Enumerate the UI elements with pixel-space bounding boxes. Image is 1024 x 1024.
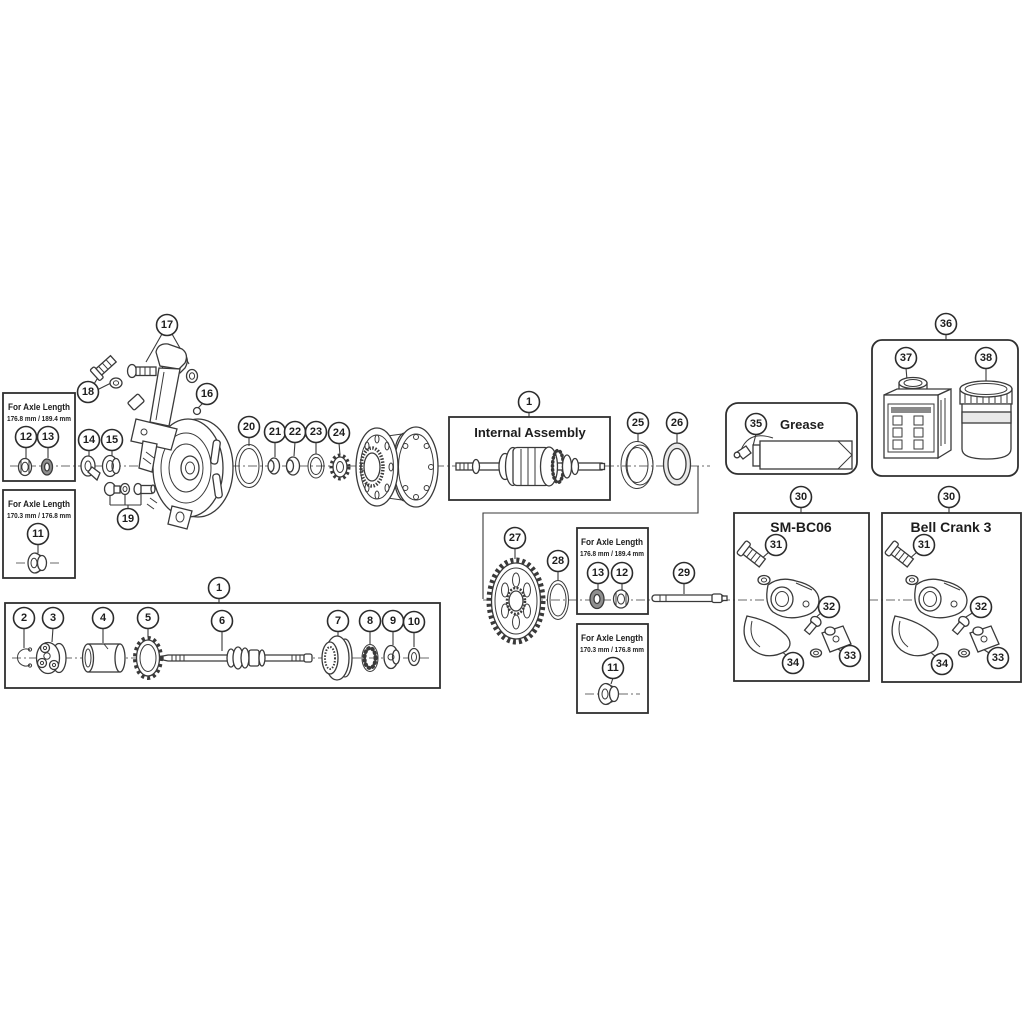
callout-1-internal: 1	[519, 392, 540, 413]
callout-7: 7	[328, 611, 349, 632]
callout-label: 9	[390, 615, 396, 627]
callout-29: 29	[674, 563, 695, 584]
part-ball-16	[194, 408, 201, 415]
box-subtitle: 170.3 mm / 176.8 mm	[7, 511, 71, 520]
part-carrier-sleeve-4	[83, 644, 126, 672]
part-cap-nut-11-mid	[599, 684, 619, 705]
callout-10: 10	[404, 612, 425, 633]
callout-33-bell-crank: 33	[988, 648, 1009, 669]
callout-label: 34	[787, 657, 800, 669]
callout-27: 27	[505, 528, 526, 549]
box-subtitle: 170.3 mm / 176.8 mm	[580, 645, 644, 654]
callout-31-bell-crank: 31	[914, 535, 935, 556]
callout-11-left: 11	[28, 524, 49, 545]
callout-8: 8	[360, 611, 381, 632]
callout-label: 24	[333, 427, 346, 439]
box-title-bell-crank-3: Bell Crank 3	[911, 519, 992, 535]
callout-26: 26	[667, 413, 688, 434]
callout-14: 14	[79, 430, 100, 451]
callout-label: 27	[509, 532, 521, 544]
box-title: For Axle Length	[581, 537, 643, 547]
callout-11-mid: 11	[603, 658, 624, 679]
callout-label: 14	[83, 434, 96, 446]
callout-label: 20	[243, 421, 255, 433]
callout-label: 23	[310, 426, 322, 438]
callout-23: 23	[306, 422, 327, 443]
part-cone-22	[287, 457, 300, 475]
box-title: For Axle Length	[581, 633, 643, 643]
callout-19: 19	[118, 509, 139, 530]
callout-12-mid: 12	[612, 563, 633, 584]
callout-32-bell-crank: 32	[971, 597, 992, 618]
callout-13-left: 13	[38, 427, 59, 448]
callout-34-sm-bc06: 34	[783, 653, 804, 674]
callout-25: 25	[628, 413, 649, 434]
callout-label: 37	[900, 352, 912, 364]
callout-5: 5	[138, 608, 159, 629]
callout-24: 24	[329, 423, 350, 444]
box-title-grease: Grease	[780, 417, 824, 432]
callout-label: 29	[678, 567, 690, 579]
callout-label: 30	[795, 491, 807, 503]
callout-label: 6	[219, 615, 225, 627]
callout-label: 26	[671, 417, 683, 429]
callout-28: 28	[548, 551, 569, 572]
callout-label: 15	[106, 434, 118, 446]
callout-label: 7	[335, 615, 341, 627]
callout-30-bell-crank: 30	[939, 487, 960, 508]
callout-label: 16	[201, 388, 213, 400]
background	[0, 0, 1024, 1024]
callout-16: 16	[197, 384, 218, 405]
callout-label: 2	[21, 612, 27, 624]
part-seal-ring-26	[664, 443, 691, 485]
callout-label: 10	[408, 616, 420, 628]
callout-label: 5	[145, 612, 151, 624]
callout-36: 36	[936, 314, 957, 335]
callout-label: 22	[289, 426, 301, 438]
callout-label: 3	[50, 612, 56, 624]
callout-label: 12	[616, 567, 628, 579]
callout-label: 8	[367, 615, 373, 627]
callout-12-left: 12	[16, 427, 37, 448]
callout-label: 1	[216, 582, 222, 594]
callout-label: 12	[20, 431, 32, 443]
callout-label: 32	[975, 601, 987, 613]
callout-31-sm-bc06: 31	[766, 535, 787, 556]
callout-label: 21	[269, 426, 281, 438]
part-washer-10	[409, 649, 420, 666]
callout-37: 37	[896, 348, 917, 369]
callout-label: 32	[823, 601, 835, 613]
box-title: For Axle Length	[8, 402, 70, 412]
callout-label: 11	[607, 662, 619, 674]
callout-label: 17	[161, 319, 173, 331]
callout-18: 18	[78, 382, 99, 403]
callout-13-mid: 13	[588, 563, 609, 584]
part-cap-nut-11-left	[28, 553, 47, 573]
callout-2: 2	[14, 608, 35, 629]
callout-label: 31	[918, 539, 930, 551]
part-seal-13-left	[42, 459, 53, 475]
callout-33-sm-bc06: 33	[840, 646, 861, 667]
callout-label: 36	[940, 318, 952, 330]
callout-label: 30	[943, 491, 955, 503]
callout-35: 35	[746, 414, 767, 435]
callout-6: 6	[212, 611, 233, 632]
callout-label: 33	[844, 650, 856, 662]
callout-22: 22	[285, 422, 306, 443]
callout-4: 4	[93, 608, 114, 629]
callout-label: 31	[770, 539, 782, 551]
callout-label: 11	[32, 528, 44, 540]
box-title: For Axle Length	[8, 499, 70, 509]
callout-label: 38	[980, 352, 992, 364]
callout-20: 20	[239, 417, 260, 438]
box-title-internal-assembly: Internal Assembly	[474, 425, 586, 440]
callout-30-sm-bc06: 30	[791, 487, 812, 508]
callout-label: 13	[42, 431, 54, 443]
callout-15: 15	[102, 430, 123, 451]
part-grease-jar-38	[960, 381, 1012, 459]
callout-17: 17	[157, 315, 178, 336]
part-planet-gear-unit-3	[37, 643, 67, 674]
part-push-rod-29	[652, 594, 727, 603]
callout-label: 4	[100, 612, 107, 624]
callout-label: 34	[936, 658, 949, 670]
callout-label: 35	[750, 418, 762, 430]
part-cone-15	[103, 456, 121, 477]
box-subtitle: 176.8 mm / 189.4 mm	[580, 549, 644, 558]
callout-label: 18	[82, 386, 94, 398]
callout-label: 33	[992, 652, 1004, 664]
callout-3: 3	[43, 608, 64, 629]
callout-label: 13	[592, 567, 604, 579]
callout-21: 21	[265, 422, 286, 443]
box-subtitle: 176.8 mm / 189.4 mm	[7, 414, 71, 423]
part-cone-21	[268, 458, 280, 474]
part-washer-12-left	[19, 459, 32, 476]
box-title-sm-bc06: SM-BC06	[770, 519, 832, 535]
callout-1-axle: 1	[209, 578, 230, 599]
callout-32-sm-bc06: 32	[819, 597, 840, 618]
callout-label: 19	[122, 513, 134, 525]
callout-38: 38	[976, 348, 997, 369]
callout-label: 1	[526, 396, 532, 408]
part-seal-13-mid	[590, 590, 604, 609]
callout-label: 28	[552, 555, 564, 567]
callout-label: 25	[632, 417, 644, 429]
callout-9: 9	[383, 611, 404, 632]
parts-diagram: For Axle Length 176.8 mm / 189.4 mm For …	[0, 0, 1024, 1024]
callout-34-bell-crank: 34	[932, 654, 953, 675]
part-washer-12-mid	[614, 590, 629, 608]
